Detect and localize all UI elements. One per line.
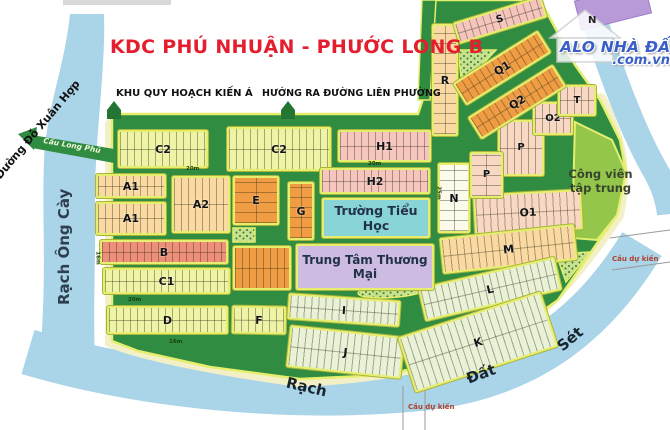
block-label-l: L bbox=[485, 283, 494, 295]
block-label-b: B bbox=[160, 247, 168, 258]
block-c2-east: C2 bbox=[227, 127, 331, 171]
lien-phuong-annotation: HƯỚNG RA ĐƯỜNG LIÊN PHƯỜNG bbox=[262, 88, 418, 99]
block-e2 bbox=[233, 246, 291, 290]
block-i: I bbox=[287, 293, 401, 327]
block-label-j: J bbox=[343, 346, 348, 357]
rach-ong-cay-label: Rạch Ông Cày bbox=[55, 205, 73, 305]
primary-school-label: Trường Tiểu Học bbox=[324, 203, 428, 233]
block-n: N bbox=[438, 163, 470, 233]
block-h2: H2 bbox=[320, 168, 430, 194]
planned-bridge-south-label: Cầu dự kiến bbox=[408, 403, 455, 411]
block-p-lower: P bbox=[470, 152, 503, 198]
block-b: B bbox=[100, 240, 228, 264]
map-title: KDC PHÚ NHUẬN - PHƯỚC LONG B bbox=[110, 36, 410, 58]
block-a1-south: A1 bbox=[96, 202, 166, 235]
road-width-label: 20m bbox=[186, 166, 199, 172]
block-label-e: E bbox=[252, 195, 260, 206]
block-label-p-lower: P bbox=[483, 170, 490, 180]
block-a1-north: A1 bbox=[96, 174, 166, 198]
road-width-label: 16m bbox=[95, 251, 101, 264]
block-label-s: S bbox=[495, 14, 505, 26]
road-width-label: 25m bbox=[436, 186, 442, 199]
road-width-label: 16m bbox=[169, 339, 182, 345]
block-j: J bbox=[286, 325, 405, 379]
block-label-o1: O1 bbox=[519, 206, 537, 218]
block-label-n: N bbox=[449, 193, 458, 204]
road-width-label: 20m bbox=[368, 161, 381, 167]
block-label-r: R bbox=[441, 75, 449, 86]
block-e: E bbox=[233, 176, 279, 225]
block-d: D bbox=[107, 306, 228, 334]
block-label-c1: C1 bbox=[159, 276, 175, 287]
block-label-a2: A2 bbox=[193, 199, 209, 210]
central-park-label: Công viên tập trung bbox=[558, 167, 643, 196]
kien-a-annotation: KHU QUY HOẠCH KIẾN Á bbox=[116, 88, 241, 99]
block-h1: H1 bbox=[338, 130, 431, 162]
block-t: T bbox=[558, 85, 596, 116]
block-label-d: D bbox=[163, 315, 172, 326]
block-label-c2-east: C2 bbox=[271, 144, 287, 155]
block-g: G bbox=[288, 182, 314, 240]
block-label-i: I bbox=[342, 304, 347, 315]
subdivision-map: C2C2H1A1A1A2EGBC1DFH2NO1PPO2TRSQ1Q2MLIJK… bbox=[0, 0, 670, 430]
commercial-center-block: Trung Tâm Thương Mại bbox=[296, 244, 434, 290]
block-label-q2: Q2 bbox=[507, 93, 527, 111]
block-label-h1: H1 bbox=[376, 141, 393, 152]
block-label-h2: H2 bbox=[367, 176, 384, 187]
block-c2-west: C2 bbox=[118, 130, 208, 168]
block-label-q1: Q1 bbox=[492, 59, 512, 77]
block-label-f: F bbox=[255, 314, 263, 325]
alonhadat-logo-domain: .com.vn bbox=[585, 53, 670, 68]
block-label-c2-west: C2 bbox=[155, 144, 171, 155]
block-c1: C1 bbox=[103, 268, 230, 294]
block-f: F bbox=[232, 306, 286, 335]
block-a2: A2 bbox=[172, 176, 230, 233]
block-label-m: M bbox=[502, 243, 514, 255]
block-label-p-upper: P bbox=[517, 143, 524, 153]
road-width-label: 20m bbox=[128, 297, 141, 303]
compass-north-label: N bbox=[588, 15, 596, 26]
block-label-a1-south: A1 bbox=[123, 213, 139, 224]
primary-school-block: Trường Tiểu Học bbox=[322, 198, 430, 238]
block-label-t: T bbox=[574, 96, 581, 106]
planned-bridge-east-label: Cầu dự kiến bbox=[612, 255, 659, 263]
block-label-g: G bbox=[296, 206, 305, 217]
block-label-k: K bbox=[472, 335, 484, 348]
commercial-center-label: Trung Tâm Thương Mại bbox=[298, 253, 432, 281]
block-label-a1-north: A1 bbox=[123, 181, 139, 192]
